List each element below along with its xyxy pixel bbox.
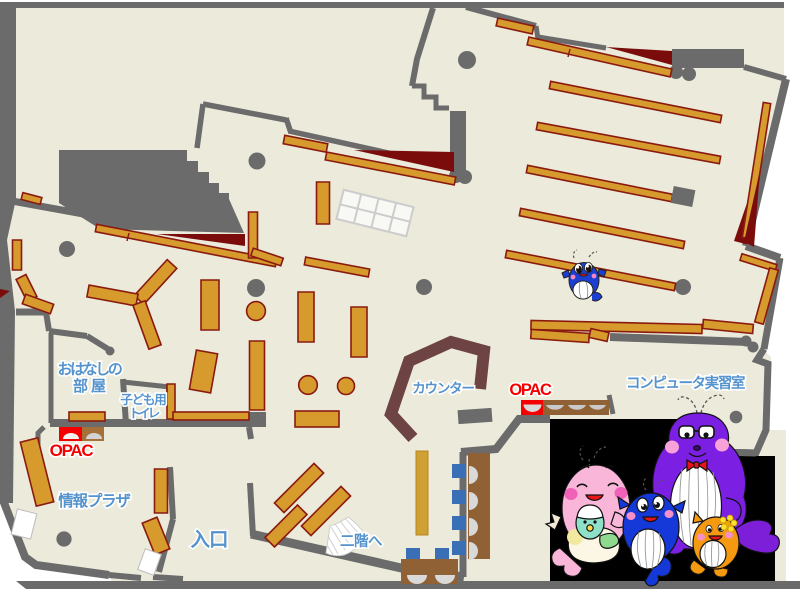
svg-text:子ども用: 子ども用: [120, 393, 166, 407]
svg-text:二階へ: 二階へ: [340, 532, 383, 550]
svg-text:おはなしの: おはなしの: [57, 361, 121, 378]
svg-text:情報プラザ: 情報プラザ: [58, 491, 131, 510]
svg-text:OPAC: OPAC: [509, 381, 552, 399]
svg-text:部屋: 部屋: [73, 377, 109, 395]
svg-text:トイレ: トイレ: [129, 407, 160, 421]
svg-text:カウンター: カウンター: [412, 381, 474, 396]
svg-text:入口: 入口: [190, 529, 227, 551]
svg-text:OPAC: OPAC: [50, 441, 94, 460]
svg-text:コンピュータ実習室: コンピュータ実習室: [626, 374, 745, 392]
